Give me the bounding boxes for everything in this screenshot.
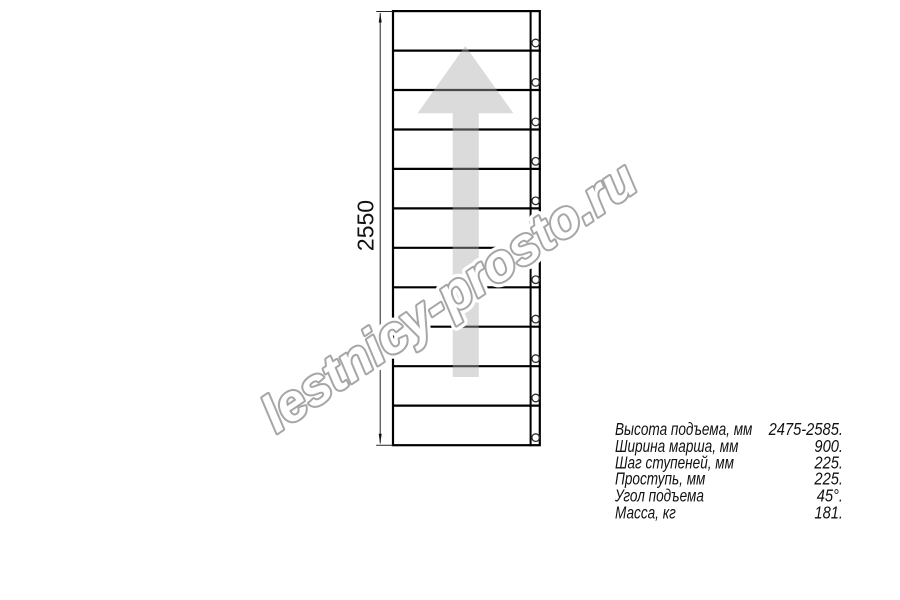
svg-text:Масса, кг: Масса, кг xyxy=(615,504,676,523)
svg-text:lestnicy-prosto.ru: lestnicy-prosto.ru xyxy=(251,150,648,444)
svg-text:2550: 2550 xyxy=(352,200,378,251)
svg-text:Проступь, мм: Проступь, мм xyxy=(615,470,706,489)
svg-text:181.: 181. xyxy=(814,504,843,523)
